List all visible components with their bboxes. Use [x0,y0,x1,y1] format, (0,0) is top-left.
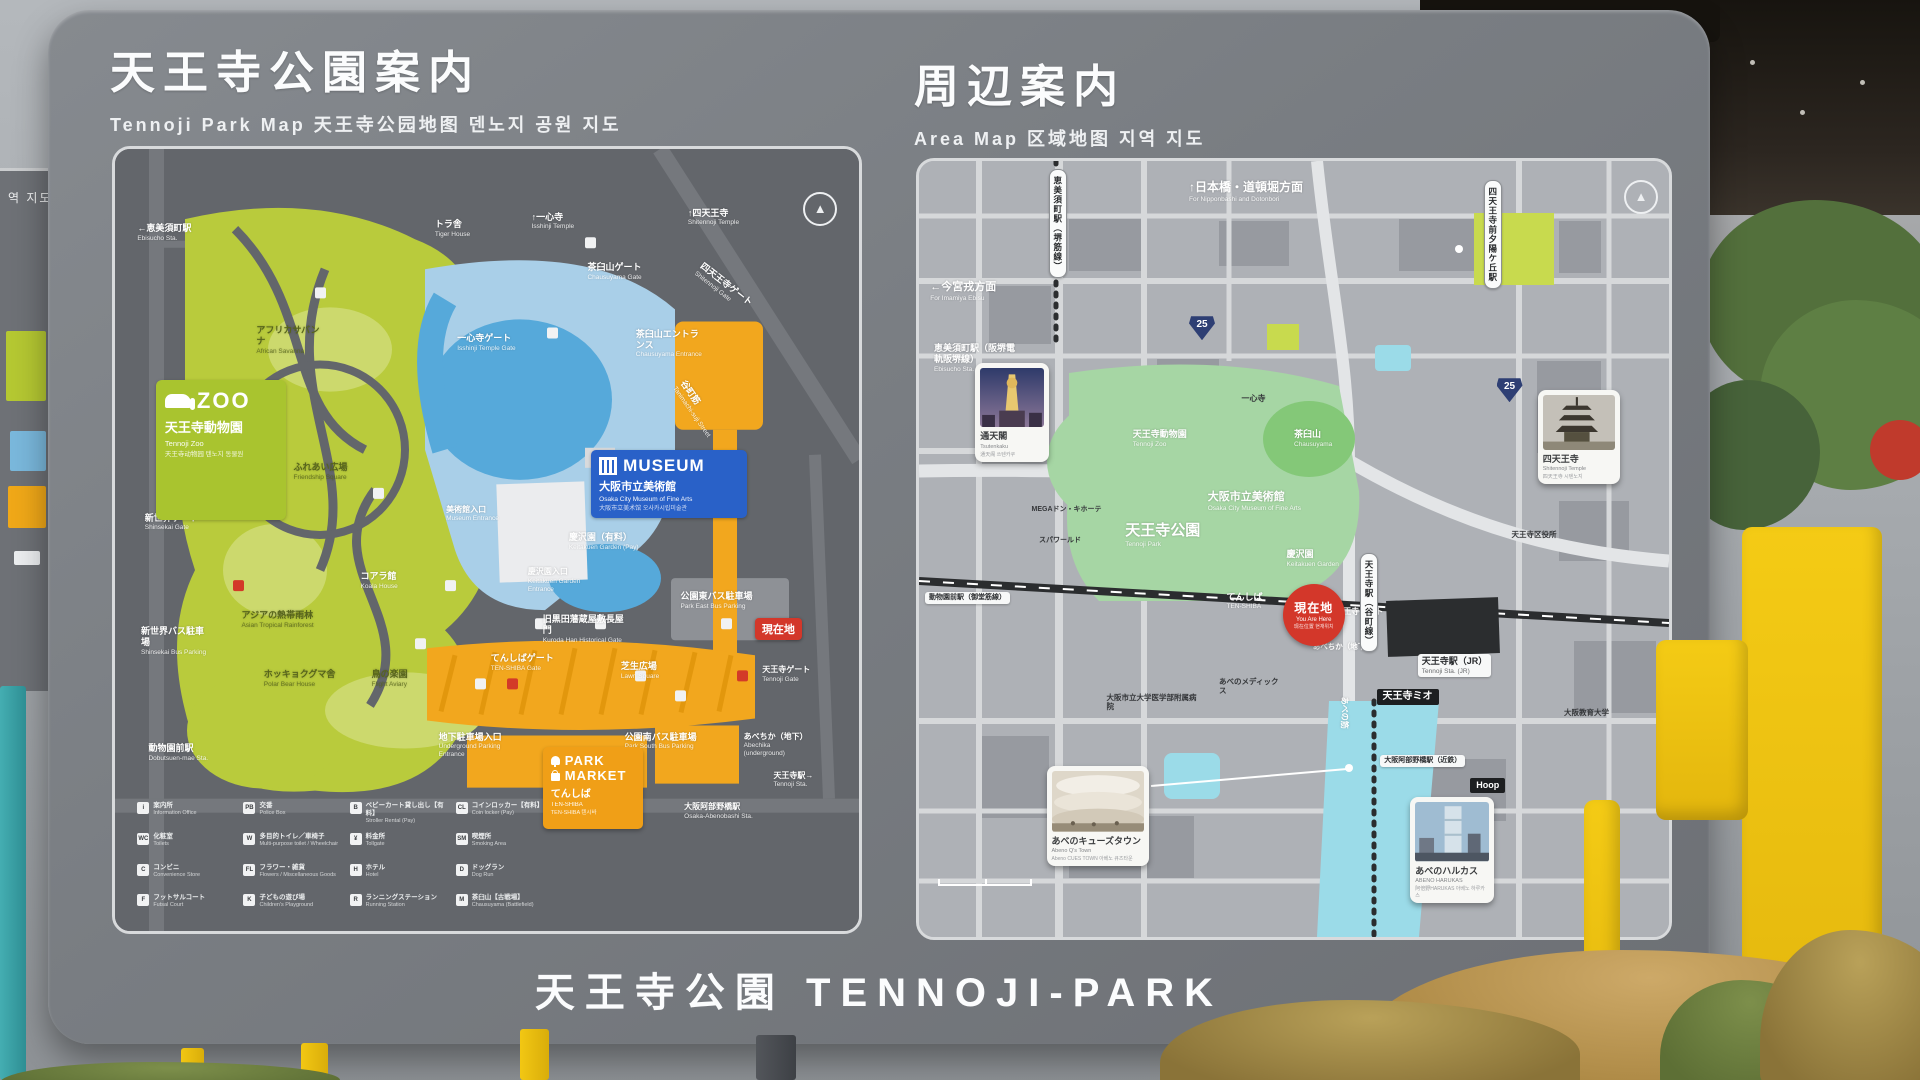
sign-leg [756,1035,796,1080]
legend-item: FLフラワー・雑貨Flowers / Miscellaneous Goods [243,864,341,893]
map-label: MEGAドン・キホーテ [1032,506,1102,514]
park-market-line1: PARK [565,753,605,768]
legend-icon: W [243,833,255,845]
you-are-here-ja: 現在地 [1294,599,1333,616]
map-label: あべちか（地下）Abechika (underground) [744,732,810,758]
map-label: スパワールド [1039,537,1081,545]
north-arrow-icon: ▲ [803,192,837,226]
map-label: 美術館入口Museum Entrance [446,505,499,523]
map-label: 一心寺ゲートIsshinji Temple Gate [457,333,515,353]
legend-item: M茶臼山【古戦場】Chausuyama (Battlefield) [456,894,554,923]
station-box-tennoji-tanimachi: 天王寺駅（谷町線） [1360,553,1378,653]
abeno-qs-town-card: あべのキューズタウン Abeno Q's Town Abeno CUES TOW… [1047,766,1149,866]
card-title: あべのキューズタウン [1052,836,1144,846]
museum-label-box: MUSEUM 大阪市立美術館 Osaka City Museum of Fine… [591,450,747,518]
tsutenkaku-card: 通天閣 Tsutenkaku 通天阁 쓰텐카쿠 [975,363,1049,462]
park-market-label-box: PARK MARKET てんしば TEN-SHIBA TEN-SHIBA 텐시바 [543,747,643,829]
map-label: ↑日本橋・道頓堀方面For Nipponbashi and Dotonbori [1189,180,1303,203]
map-legend: i案内所Information OfficeWC化粧室ToiletsCコンビニC… [137,802,554,923]
fragment-map-white [14,551,40,565]
card-title: 四天王寺 [1543,454,1615,464]
zoo-name-ja: 天王寺動物園 [165,417,277,436]
legend-icon: C [137,864,149,876]
map-label: 天王寺動物園Tennoji Zoo [1133,429,1187,449]
map-label: 芝生広場Lawn Square [621,661,659,681]
light-speck [1860,80,1865,85]
map-label: ↑一心寺Isshinji Temple [532,212,575,232]
yellow-sign-arm [1656,640,1748,820]
you-are-here-marker: 現在地 You Are Here 现在位置 현재위치 [1283,584,1345,646]
legend-icon: ¥ [350,833,362,845]
zoo-name-sub: 天王寺动物园 텐노지 동물원 [165,448,277,458]
park-market-sub: TEN-SHIBA 텐시바 [551,808,635,816]
yellow-post [520,1029,549,1080]
legend-icon: SM [456,833,468,845]
map-label: てんしばTEN-SHIBA [1227,592,1263,612]
fragment-map-green [6,331,46,401]
map-label: あべの筋 [1339,697,1349,729]
map-label: ホッキョクグマ舎Polar Bear House [264,669,336,689]
legend-item: HホテルHotel [350,864,448,893]
map-label: コアラ館Koala House [361,571,398,591]
map-label: 大阪市立大学医学部附属病院 [1107,693,1199,711]
shitennoji-photo [1543,395,1615,450]
map-label: 天王寺公園Tennoji Park [1125,522,1200,549]
legend-icon: R [350,894,362,906]
map-label: 谷町筋Tanimachi-suji Street [670,379,721,440]
map-label: てんしばゲートTEN-SHIBA Gate [491,653,555,673]
area-map-title: 周辺案内 [914,50,1205,115]
area-map-subtitle: Area Map 区域地图 지역 지도 [914,125,1205,151]
legend-item: PB交番Police Box [243,802,341,831]
station-box-shitennojimae: 四天王寺前夕陽ケ丘駅 [1484,180,1502,289]
card-translations: 通天阁 쓰텐카쿠 [980,451,1044,458]
grass-strip [0,1062,340,1080]
legend-icon: K [243,894,255,906]
area-map-panel: ↑日本橋・道頓堀方面For Nipponbashi and Dotonbori←… [916,158,1672,940]
map-label: 大阪市立美術館Osaka City Museum of Fine Arts [1208,491,1328,513]
fragment-map-blue [10,431,46,471]
zoo-name-en: Tennoji Zoo [165,439,277,448]
legend-item: RランニングステーションRunning Station [350,894,448,923]
map-label: ←今宮戎方面For Imamiya Ebisu [930,281,996,303]
shopping-bag-icon [551,773,560,781]
card-subtitle: Abeno Q's Town [1052,848,1144,854]
legend-icon: B [350,802,362,814]
map-label: 鳥の楽園Flight Aviary [372,669,408,689]
light-speck [1800,110,1805,115]
legend-icon: PB [243,802,255,814]
legend-item: CコンビニConvenience Store [137,864,235,893]
map-label: ←恵美須町駅Ebisucho Sta. [137,223,191,243]
park-map-subtitle: Tennoji Park Map 天王寺公园地图 덴노지 공원 지도 [110,111,622,137]
map-label: 大阪阿部野橋駅（近鉄） [1380,755,1465,767]
legend-item: FフットサルコートFutsal Court [137,894,235,923]
you-are-here-badge: 現在地 [755,618,802,640]
legend-item: K子どもの遊び場Children's Playground [243,894,341,923]
legend-item: WC化粧室Toilets [137,833,235,862]
park-market-line2: MARKET [565,768,627,783]
legend-item: Bベビーカート貸し出し【有料】Stroller Rental (Pay) [350,802,448,831]
map-label: 大阪阿部野橋駅Osaka-Abenobashi Sta. [684,802,756,820]
map-label: 茶臼山エントランスChausuyama Entrance [636,329,704,359]
map-label: 一心寺 [1242,394,1266,404]
legend-item: W多目的トイレ／車椅子Multi-purpose toilet / Wheelc… [243,833,341,862]
light-speck [1750,60,1755,65]
map-label: 天王寺ミオ [1377,689,1439,705]
station-box-ebisucho: 恵美須町駅（堺筋線） [1049,169,1067,278]
card-subtitle: Tsutenkaku [980,444,1044,450]
zoo-title: ZOO [197,388,251,414]
dark-canopy-structure [1700,0,1920,215]
map-label: トラ舎Tiger House [435,219,470,239]
museum-title: MUSEUM [623,456,705,476]
map-label: 慶沢園（有料）Keitakuen Garden (Pay) [569,532,639,552]
legend-item: DドッグランDog Run [456,864,554,893]
museum-name-en: Osaka City Museum of Fine Arts [599,496,739,503]
map-label: 慶沢園Keitakuen Garden [1287,549,1339,569]
map-label: 天王寺区役所 [1512,530,1557,539]
map-label: 新世界バス駐車場Shinsekai Bus Parking [141,626,211,656]
map-label: 茶臼山ゲートChausuyama Gate [587,262,641,282]
area-map-title-block: 周辺案内 Area Map 区域地图 지역 지도 [914,50,1205,151]
map-label: アジアの熱帯雨林Asian Tropical Rainforest [241,610,321,630]
card-title: あべのハルカス [1415,866,1489,876]
legend-icon: F [137,894,149,906]
park-map-title-block: 天王寺公園案内 Tennoji Park Map 天王寺公园地图 덴노지 공원 … [110,36,622,137]
legend-icon: H [350,864,362,876]
map-label: 地下駐車場入口Underground Parking Entrance [439,732,521,759]
qs-town-photo [1052,771,1144,832]
legend-item: i案内所Information Office [137,802,235,831]
legend-item: CLコインロッカー【有料】Coin locker (Pay) [456,802,554,831]
museum-icon [599,457,617,475]
map-label: 慶沢園入口Keitakuen Garden Entrance [528,567,592,593]
card-title: 通天閣 [980,431,1044,441]
card-translations: Abeno CUES TOWN 아베노 큐즈타운 [1052,855,1144,862]
card-subtitle: ABENO HARUKAS [1415,878,1489,884]
area-map-labels: ↑日本橋・道頓堀方面For Nipponbashi and Dotonbori←… [919,161,1669,937]
card-translations: 阿倍野HARUKAS 아베노 하루카스 [1415,885,1489,899]
map-label: 動物園前駅（御堂筋線） [925,592,1010,604]
you-are-here-sub: 现在位置 현재위치 [1294,623,1334,630]
museum-name-ja: 大阪市立美術館 [599,478,739,494]
scale-bar [938,879,1032,886]
map-label: アフリカサバンナAfrican Savanna [256,325,326,355]
map-label: 公園東バス駐車場Park East Bus Parking [680,591,752,611]
legend-icon: CL [456,802,468,814]
abeno-harukas-card: あべのハルカス ABENO HARUKAS 阿倍野HARUKAS 아베노 하루카… [1410,797,1494,903]
map-label: あべのメディックス [1219,677,1283,695]
map-label: 動物園前駅Dobutsuen-mae Sta. [148,743,208,763]
map-label: 天王寺駅（JR）Tennoji Sta. (JR) [1418,654,1492,678]
map-label: ふれあい広場Friendship Square [294,462,348,482]
tsutenkaku-photo [980,368,1044,428]
map-label: 四天王寺ゲートShitennoji Gate [692,261,754,315]
park-map-title: 天王寺公園案内 [110,36,622,101]
card-subtitle: Shitennoji Temple [1543,466,1615,472]
fragment-map-orange [8,486,46,528]
legend-item: ¥料金所Tollgate [350,833,448,862]
park-market-ja: てんしば [551,785,635,800]
map-label: ↑四天王寺Shitennoji Temple [688,208,739,228]
shitennoji-card: 四天王寺 Shitennoji Temple 四天王寺 시텐노지 [1538,390,1620,484]
tennoji-park-map-panel: ←恵美須町駅Ebisucho Sta.トラ舎Tiger House↑一心寺Iss… [112,146,862,934]
teal-post [0,686,26,1080]
map-label: 大阪教育大学 [1564,708,1609,717]
map-label: 天王寺駅→Tennoji Sta. [773,771,813,789]
elephant-icon [165,394,191,408]
card-translations: 四天王寺 시텐노지 [1543,473,1615,480]
harukas-photo [1415,802,1489,861]
legend-icon: M [456,894,468,906]
zoo-label-box: ZOO 天王寺動物園 Tennoji Zoo 天王寺动物园 텐노지 동물원 [156,380,286,521]
tree-icon [551,756,560,765]
fragment-text: 역 지도 [8,189,52,206]
map-label: 旧黒田藩蔵屋敷長屋門Kuroda Han Historical Gate [543,614,631,644]
legend-icon: FL [243,864,255,876]
legend-icon: WC [137,833,149,845]
legend-item: SM喫煙所Smoking Area [456,833,554,862]
map-label: 天王寺ゲートTennoji Gate [762,665,814,683]
map-label: Hoop [1470,778,1505,793]
photo-of-park-signboard: 역 지도 天王寺公園案内 Tennoji Park Map 天王寺公园地图 덴노… [0,0,1920,1080]
museum-name-sub: 大阪市立美术馆 오사카시립미술관 [599,503,739,512]
legend-icon: i [137,802,149,814]
legend-icon: D [456,864,468,876]
signboard: 天王寺公園案内 Tennoji Park Map 天王寺公园地图 덴노지 공원 … [48,10,1710,1044]
map-label: 茶臼山Chausuyama [1294,429,1332,449]
